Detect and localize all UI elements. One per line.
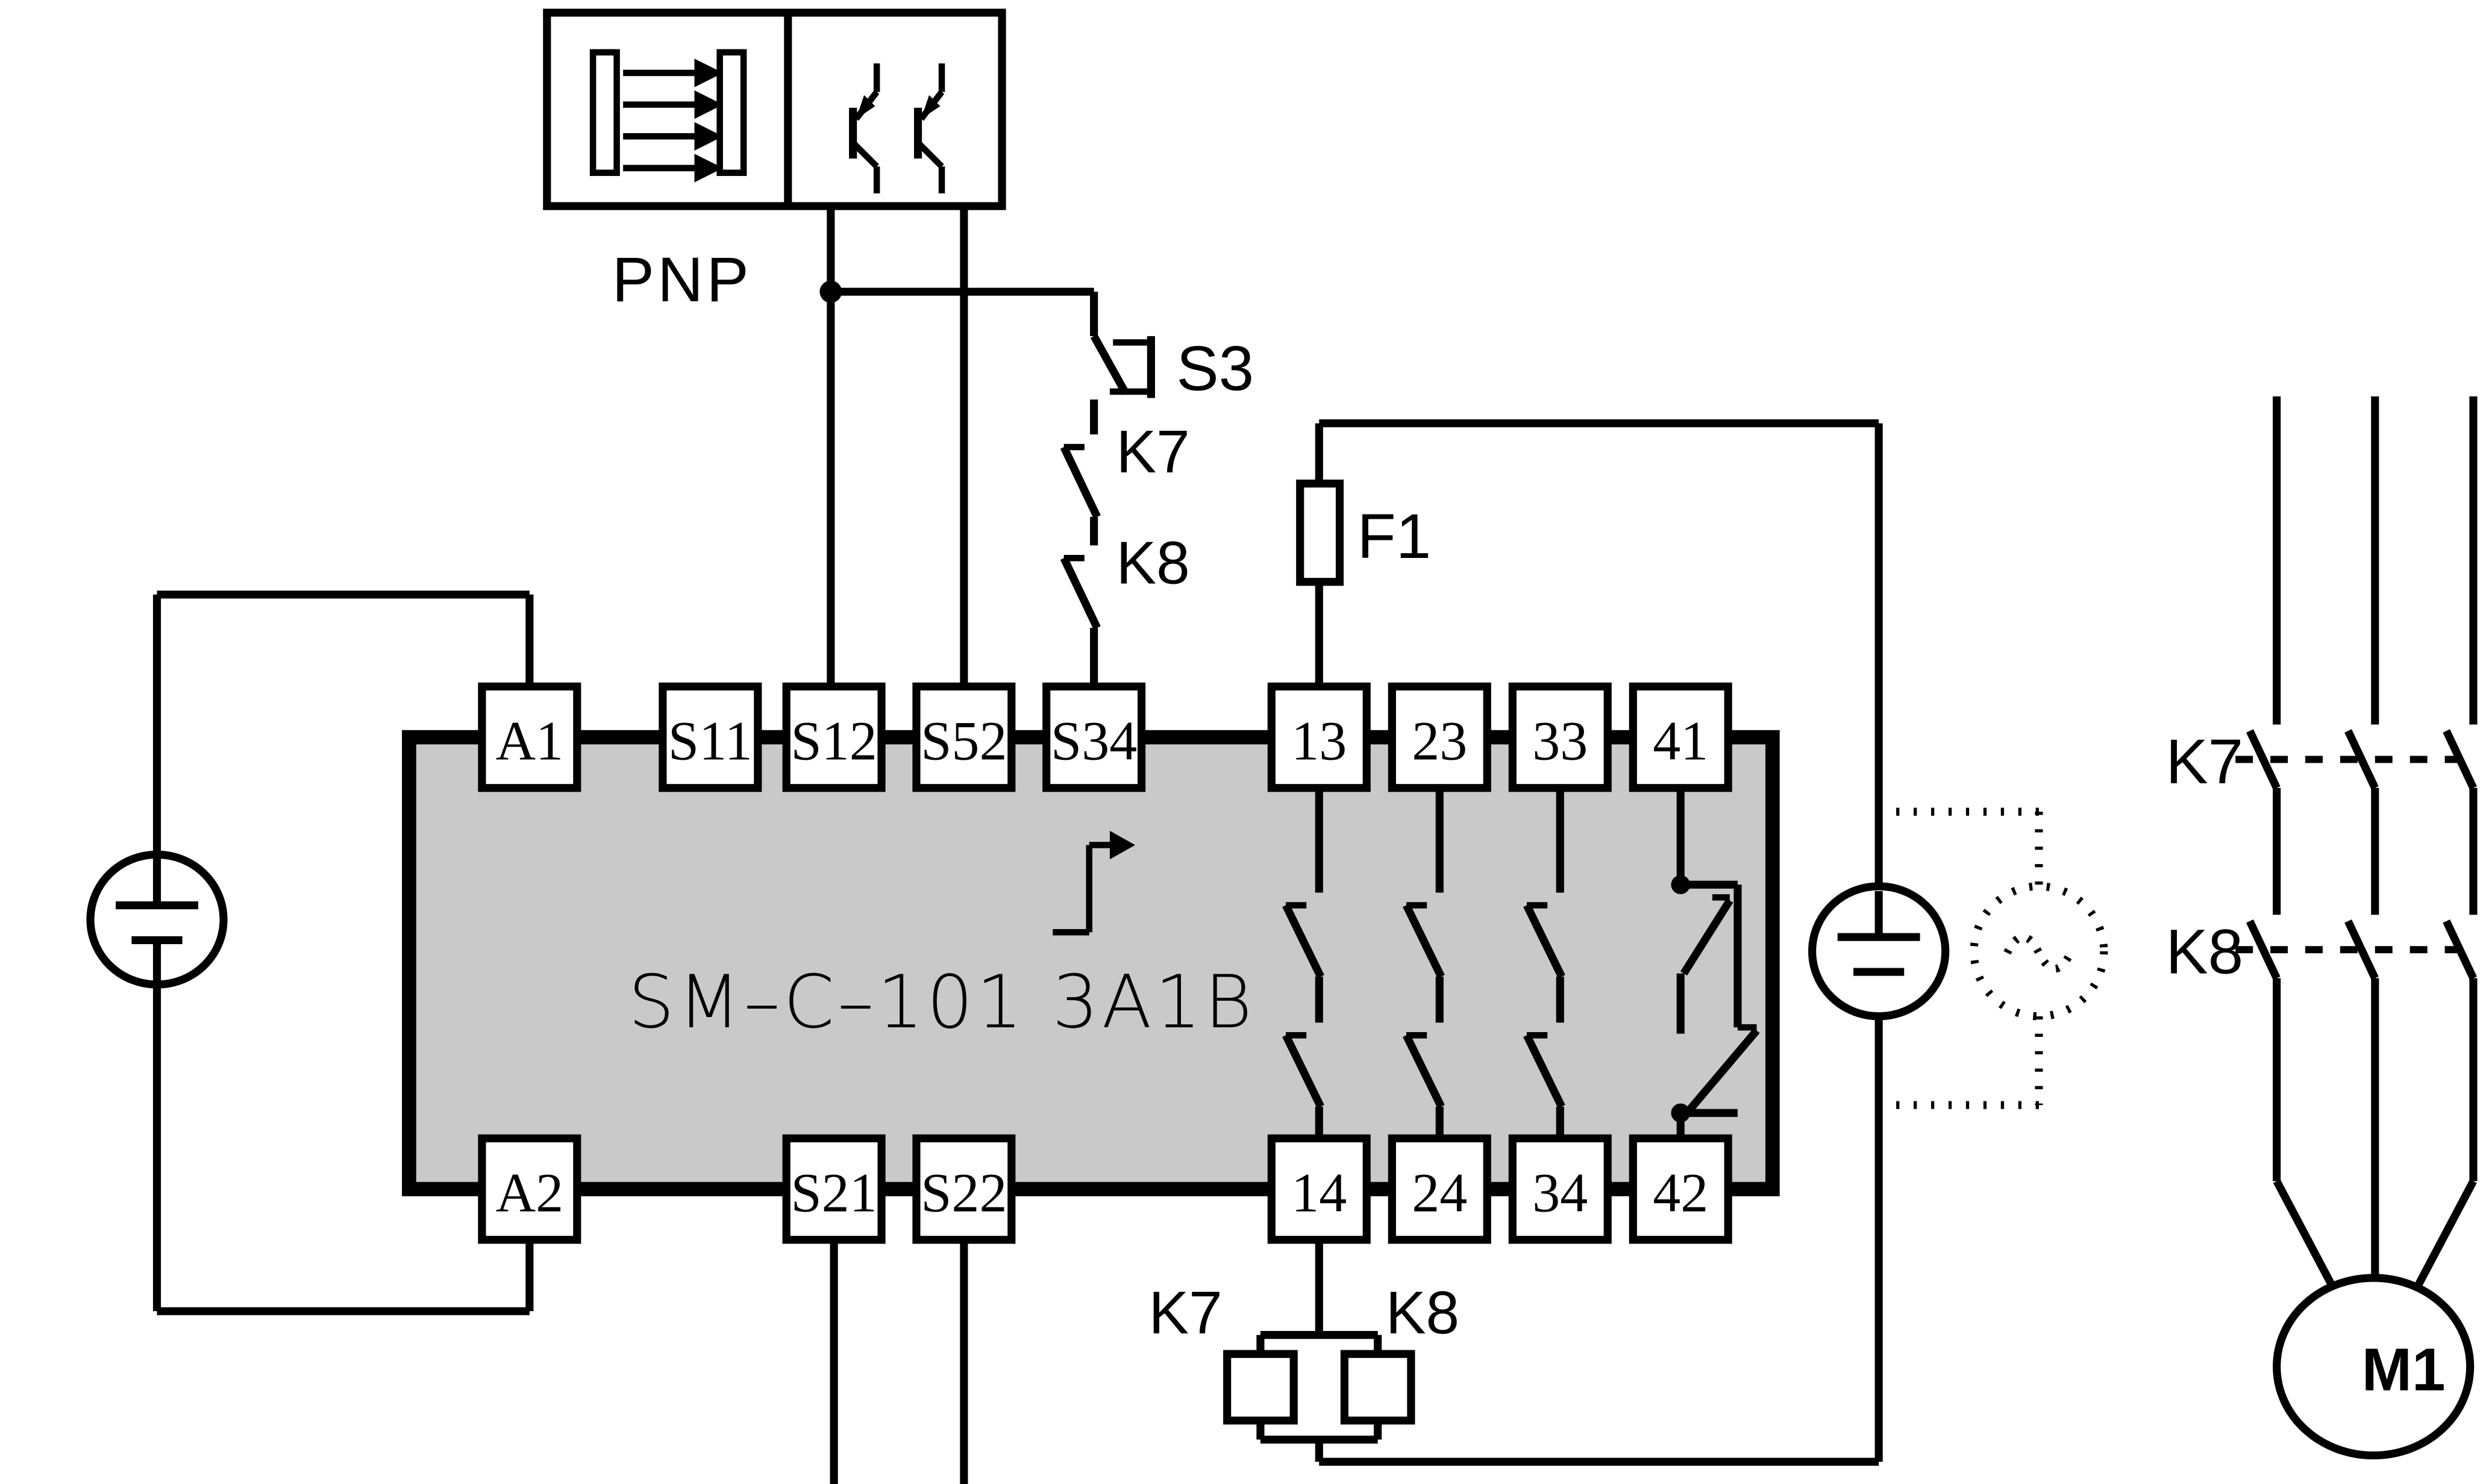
terminal-label: A1	[496, 710, 564, 771]
dc-source-left	[90, 854, 224, 985]
terminal-label: 41	[1653, 710, 1708, 771]
safety-module: SM–C–101 3A1B A1S1	[409, 686, 1773, 1239]
bottom-wires	[834, 1240, 964, 1484]
contactor-coils: K7 K8	[1148, 1240, 1459, 1462]
terminal-label: S11	[668, 710, 753, 771]
fuse-f1	[1300, 484, 1340, 582]
contactor-k7-label: K7	[2165, 727, 2243, 797]
terminal-41: 41	[1633, 686, 1728, 787]
k8-coil	[1344, 1354, 1411, 1421]
terminal-label: A2	[496, 1162, 564, 1223]
junction-dot	[819, 281, 842, 303]
motor-m1: M1	[2277, 1278, 2470, 1456]
sine-icon	[2007, 937, 2070, 969]
sensor-output-wires	[831, 206, 1094, 698]
terminal-label: S21	[791, 1162, 877, 1223]
sensor-unit: PNP	[547, 13, 1002, 315]
k7-no-contact	[1064, 447, 1097, 517]
k8-coil-label: K8	[1386, 1279, 1459, 1347]
terminal-14: 14	[1271, 1138, 1367, 1239]
terminal-A1: A1	[482, 686, 577, 787]
motor-label: M1	[2362, 1336, 2446, 1404]
k7-coil-label: K7	[1148, 1279, 1222, 1347]
terminal-label: 24	[1412, 1162, 1467, 1223]
terminal-label: S22	[921, 1162, 1007, 1223]
sensor-type-label: PNP	[612, 245, 752, 315]
s3-label: S3	[1176, 333, 1254, 404]
f1-label: F1	[1357, 501, 1431, 572]
terminal-label: S52	[921, 710, 1007, 771]
terminal-S11: S11	[663, 686, 758, 787]
safety-relay-wiring-diagram: PNP S3 K7 K8	[0, 0, 2486, 1484]
terminal-A2: A2	[482, 1138, 577, 1239]
terminal-34: 34	[1512, 1138, 1608, 1239]
terminal-label: 34	[1532, 1162, 1588, 1223]
terminal-42: 42	[1633, 1138, 1728, 1239]
terminal-S22: S22	[916, 1138, 1012, 1239]
s3-pushbutton	[1094, 336, 1151, 398]
k8-contact-label: K8	[1116, 529, 1189, 596]
phase-lines-top	[2277, 396, 2473, 725]
terminal-label: 23	[1412, 710, 1467, 771]
terminal-label: S12	[791, 710, 877, 771]
contactor-k7-contacts: K7	[2165, 727, 2473, 797]
module-name: SM–C–101 3A1B	[628, 960, 1256, 1045]
phase-lines-mid	[2277, 788, 2473, 915]
reset-feedback-chain: S3 K7 K8	[1064, 292, 1254, 698]
dc-source-right	[1812, 886, 1946, 1016]
k8-no-contact	[1064, 558, 1097, 628]
contactor-k8-label: K8	[2165, 917, 2243, 988]
terminal-S52: S52	[916, 686, 1012, 787]
terminal-23: 23	[1392, 686, 1487, 787]
terminal-13: 13	[1271, 686, 1367, 787]
terminal-24: 24	[1392, 1138, 1487, 1239]
terminal-label: 13	[1291, 710, 1347, 771]
terminal-label: 33	[1532, 710, 1588, 771]
terminal-S34: S34	[1047, 686, 1142, 787]
k7-contact-label: K7	[1116, 418, 1189, 486]
contactor-k8-contacts: K8	[2165, 917, 2473, 988]
terminal-label: 14	[1291, 1162, 1347, 1223]
terminal-S12: S12	[786, 686, 881, 787]
terminal-33: 33	[1512, 686, 1608, 787]
motor-feed-lines	[2277, 978, 2473, 1289]
power-circuit: K7 K8 M1	[2165, 396, 2473, 1456]
terminal-label: S34	[1051, 710, 1137, 771]
k7-coil	[1227, 1354, 1294, 1421]
terminal-label: 42	[1653, 1162, 1708, 1223]
terminal-S21: S21	[786, 1138, 881, 1239]
